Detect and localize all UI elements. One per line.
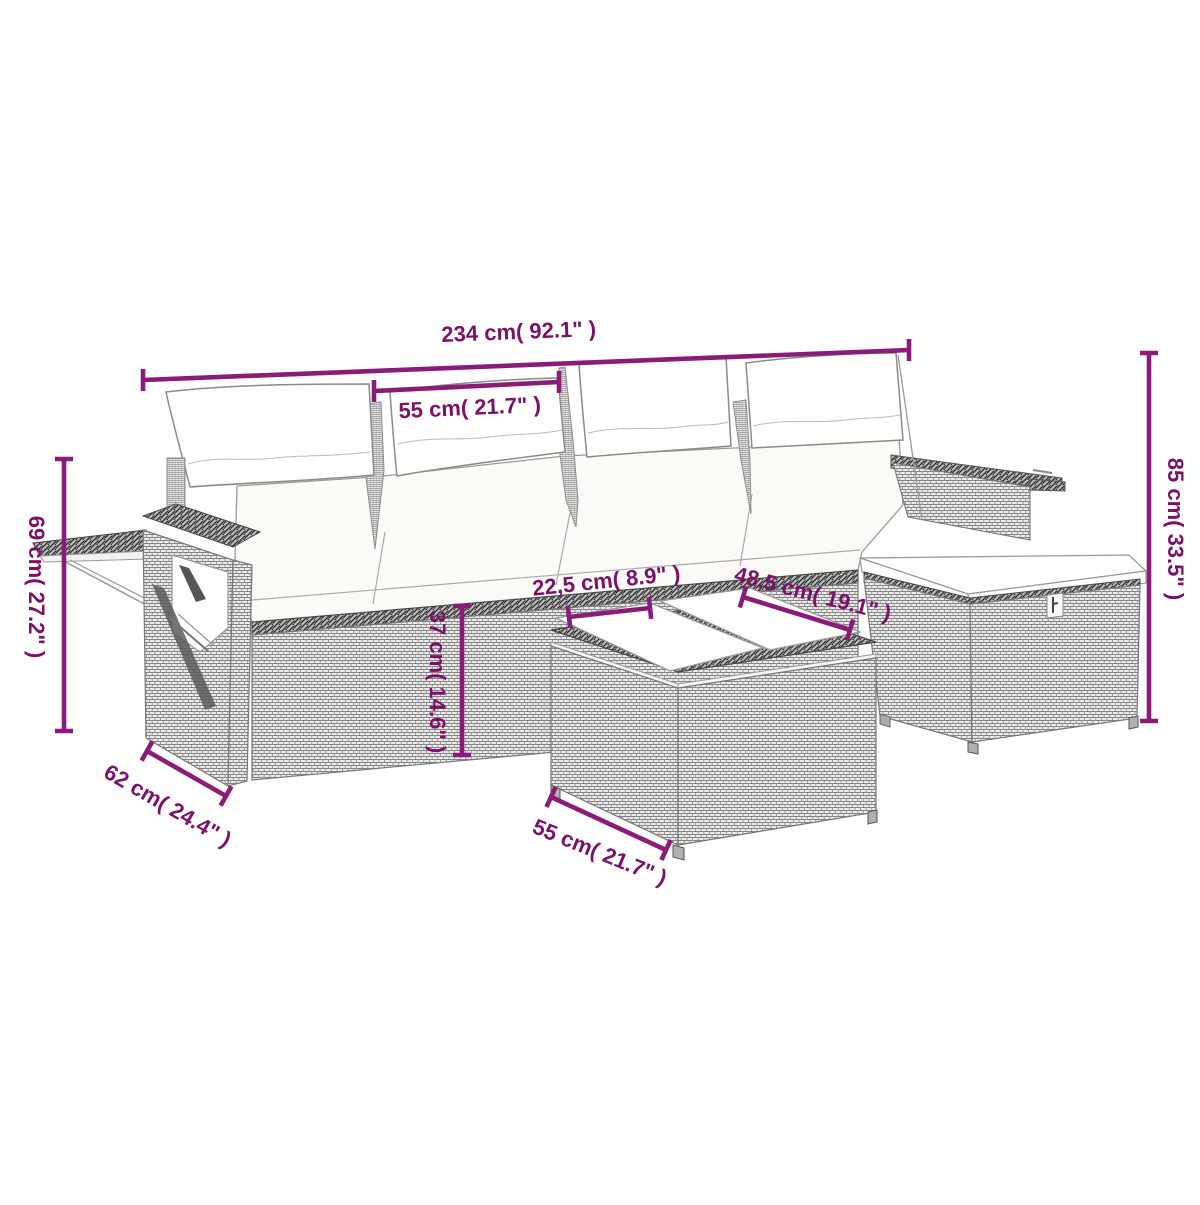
svg-text:69 cm( 27.2" ): 69 cm( 27.2" ) bbox=[24, 516, 49, 659]
svg-text:85 cm( 33.5" ): 85 cm( 33.5" ) bbox=[1163, 458, 1188, 601]
svg-text:37 cm( 14.6" ): 37 cm( 14.6" ) bbox=[425, 611, 450, 754]
